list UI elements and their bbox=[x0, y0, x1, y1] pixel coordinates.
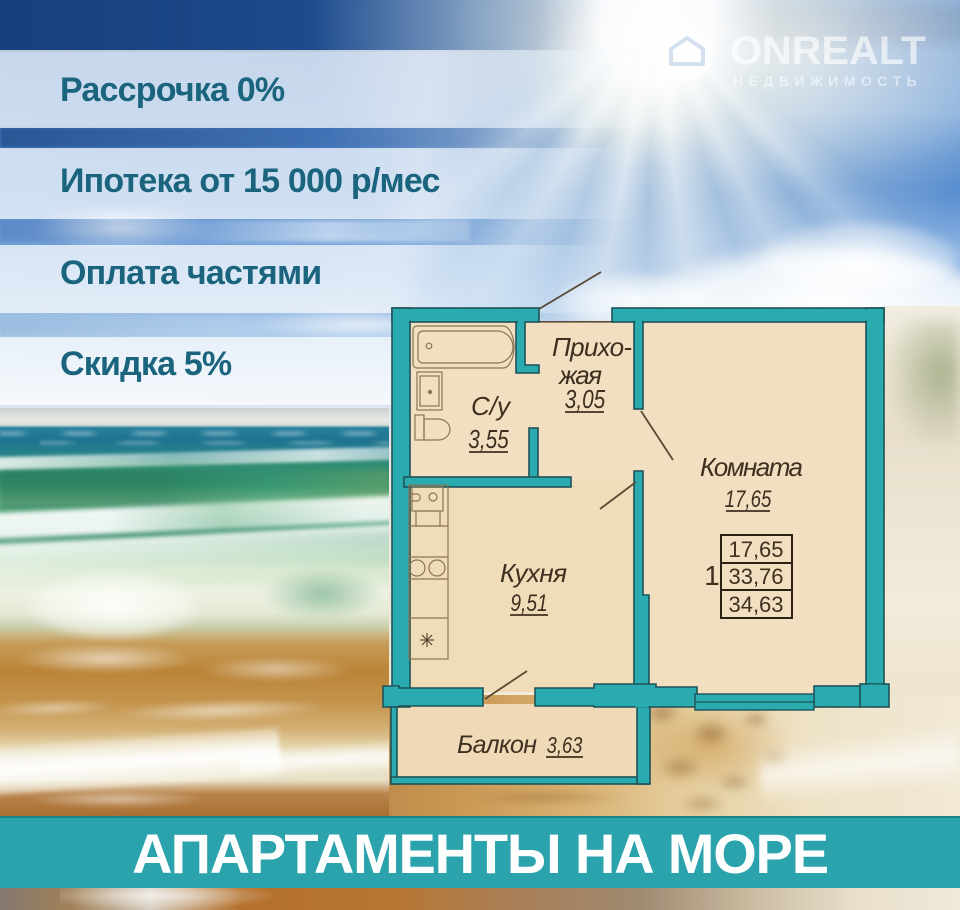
svg-text:9,51: 9,51 bbox=[510, 589, 547, 617]
svg-text:17,65: 17,65 bbox=[728, 537, 783, 562]
svg-text:34,63: 34,63 bbox=[728, 592, 783, 617]
svg-text:3,63: 3,63 bbox=[547, 733, 583, 758]
svg-text:17,65: 17,65 bbox=[725, 486, 773, 513]
svg-text:1: 1 bbox=[704, 560, 720, 591]
svg-text:33,76: 33,76 bbox=[728, 564, 783, 589]
svg-text:С/у: С/у bbox=[471, 391, 512, 421]
svg-text:ONREALT: ONREALT bbox=[730, 29, 926, 73]
svg-text:Кухня: Кухня bbox=[500, 558, 567, 588]
svg-text:Прихо-: Прихо- bbox=[552, 332, 632, 362]
svg-text:3,05: 3,05 bbox=[565, 385, 606, 414]
svg-text:НЕДВИЖИМОСТЬ: НЕДВИЖИМОСТЬ bbox=[733, 73, 922, 89]
svg-text:Балкон: Балкон bbox=[457, 731, 537, 759]
svg-text:3,55: 3,55 bbox=[468, 425, 509, 454]
svg-text:Комната: Комната bbox=[700, 452, 803, 482]
